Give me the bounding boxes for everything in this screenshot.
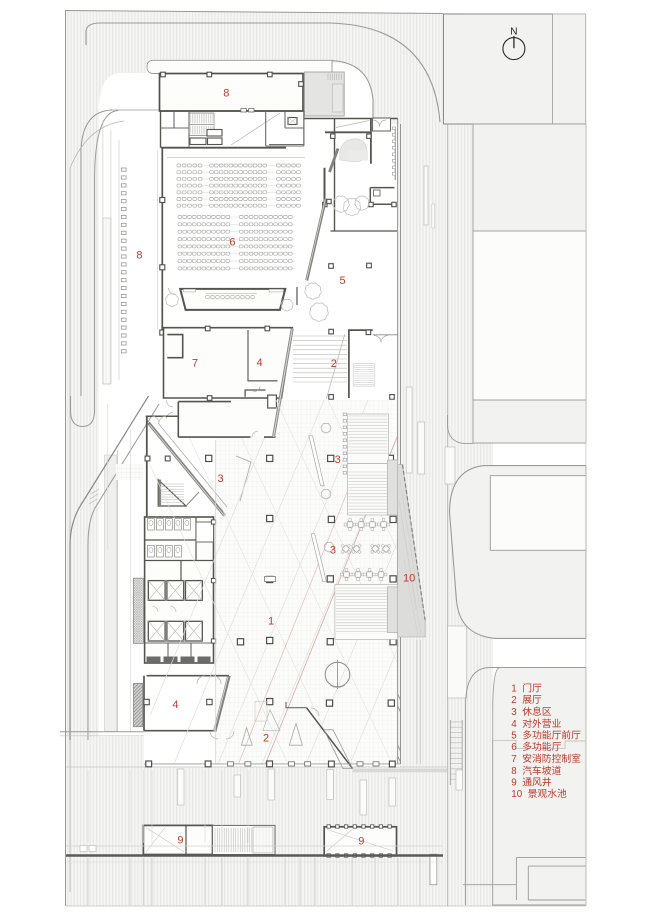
svg-text:9 通风井: 9 通风井 — [511, 776, 551, 789]
svg-text:8: 8 — [136, 250, 142, 262]
svg-text:8 汽车坡道: 8 汽车坡道 — [511, 764, 561, 777]
svg-text:3: 3 — [335, 454, 341, 466]
svg-text:5 多功能厅前厅: 5 多功能厅前厅 — [511, 729, 581, 742]
svg-text:8: 8 — [223, 88, 229, 100]
svg-text:2 展厅: 2 展厅 — [511, 694, 542, 706]
svg-text:3 休息区: 3 休息区 — [511, 705, 551, 718]
svg-text:9: 9 — [177, 835, 183, 847]
svg-text:7: 7 — [192, 358, 198, 370]
svg-text:10 景观水池: 10 景观水池 — [511, 787, 567, 800]
svg-text:2: 2 — [263, 733, 269, 745]
svg-text:4 对外营业: 4 对外营业 — [511, 717, 561, 730]
svg-text:1 门厅: 1 门厅 — [511, 682, 542, 695]
svg-text:4: 4 — [257, 357, 263, 369]
svg-text:4: 4 — [172, 699, 178, 711]
svg-text:N: N — [510, 26, 517, 37]
svg-text:3: 3 — [330, 545, 336, 557]
svg-text:2: 2 — [331, 358, 337, 370]
svg-text:5: 5 — [339, 275, 345, 287]
svg-text:1: 1 — [268, 616, 274, 628]
svg-text:6: 6 — [229, 237, 235, 249]
svg-text:7 安消防控制室: 7 安消防控制室 — [511, 752, 581, 765]
svg-text:10: 10 — [403, 573, 415, 585]
svg-text:6 多功能厅: 6 多功能厅 — [511, 740, 561, 753]
svg-text:3: 3 — [217, 473, 223, 485]
